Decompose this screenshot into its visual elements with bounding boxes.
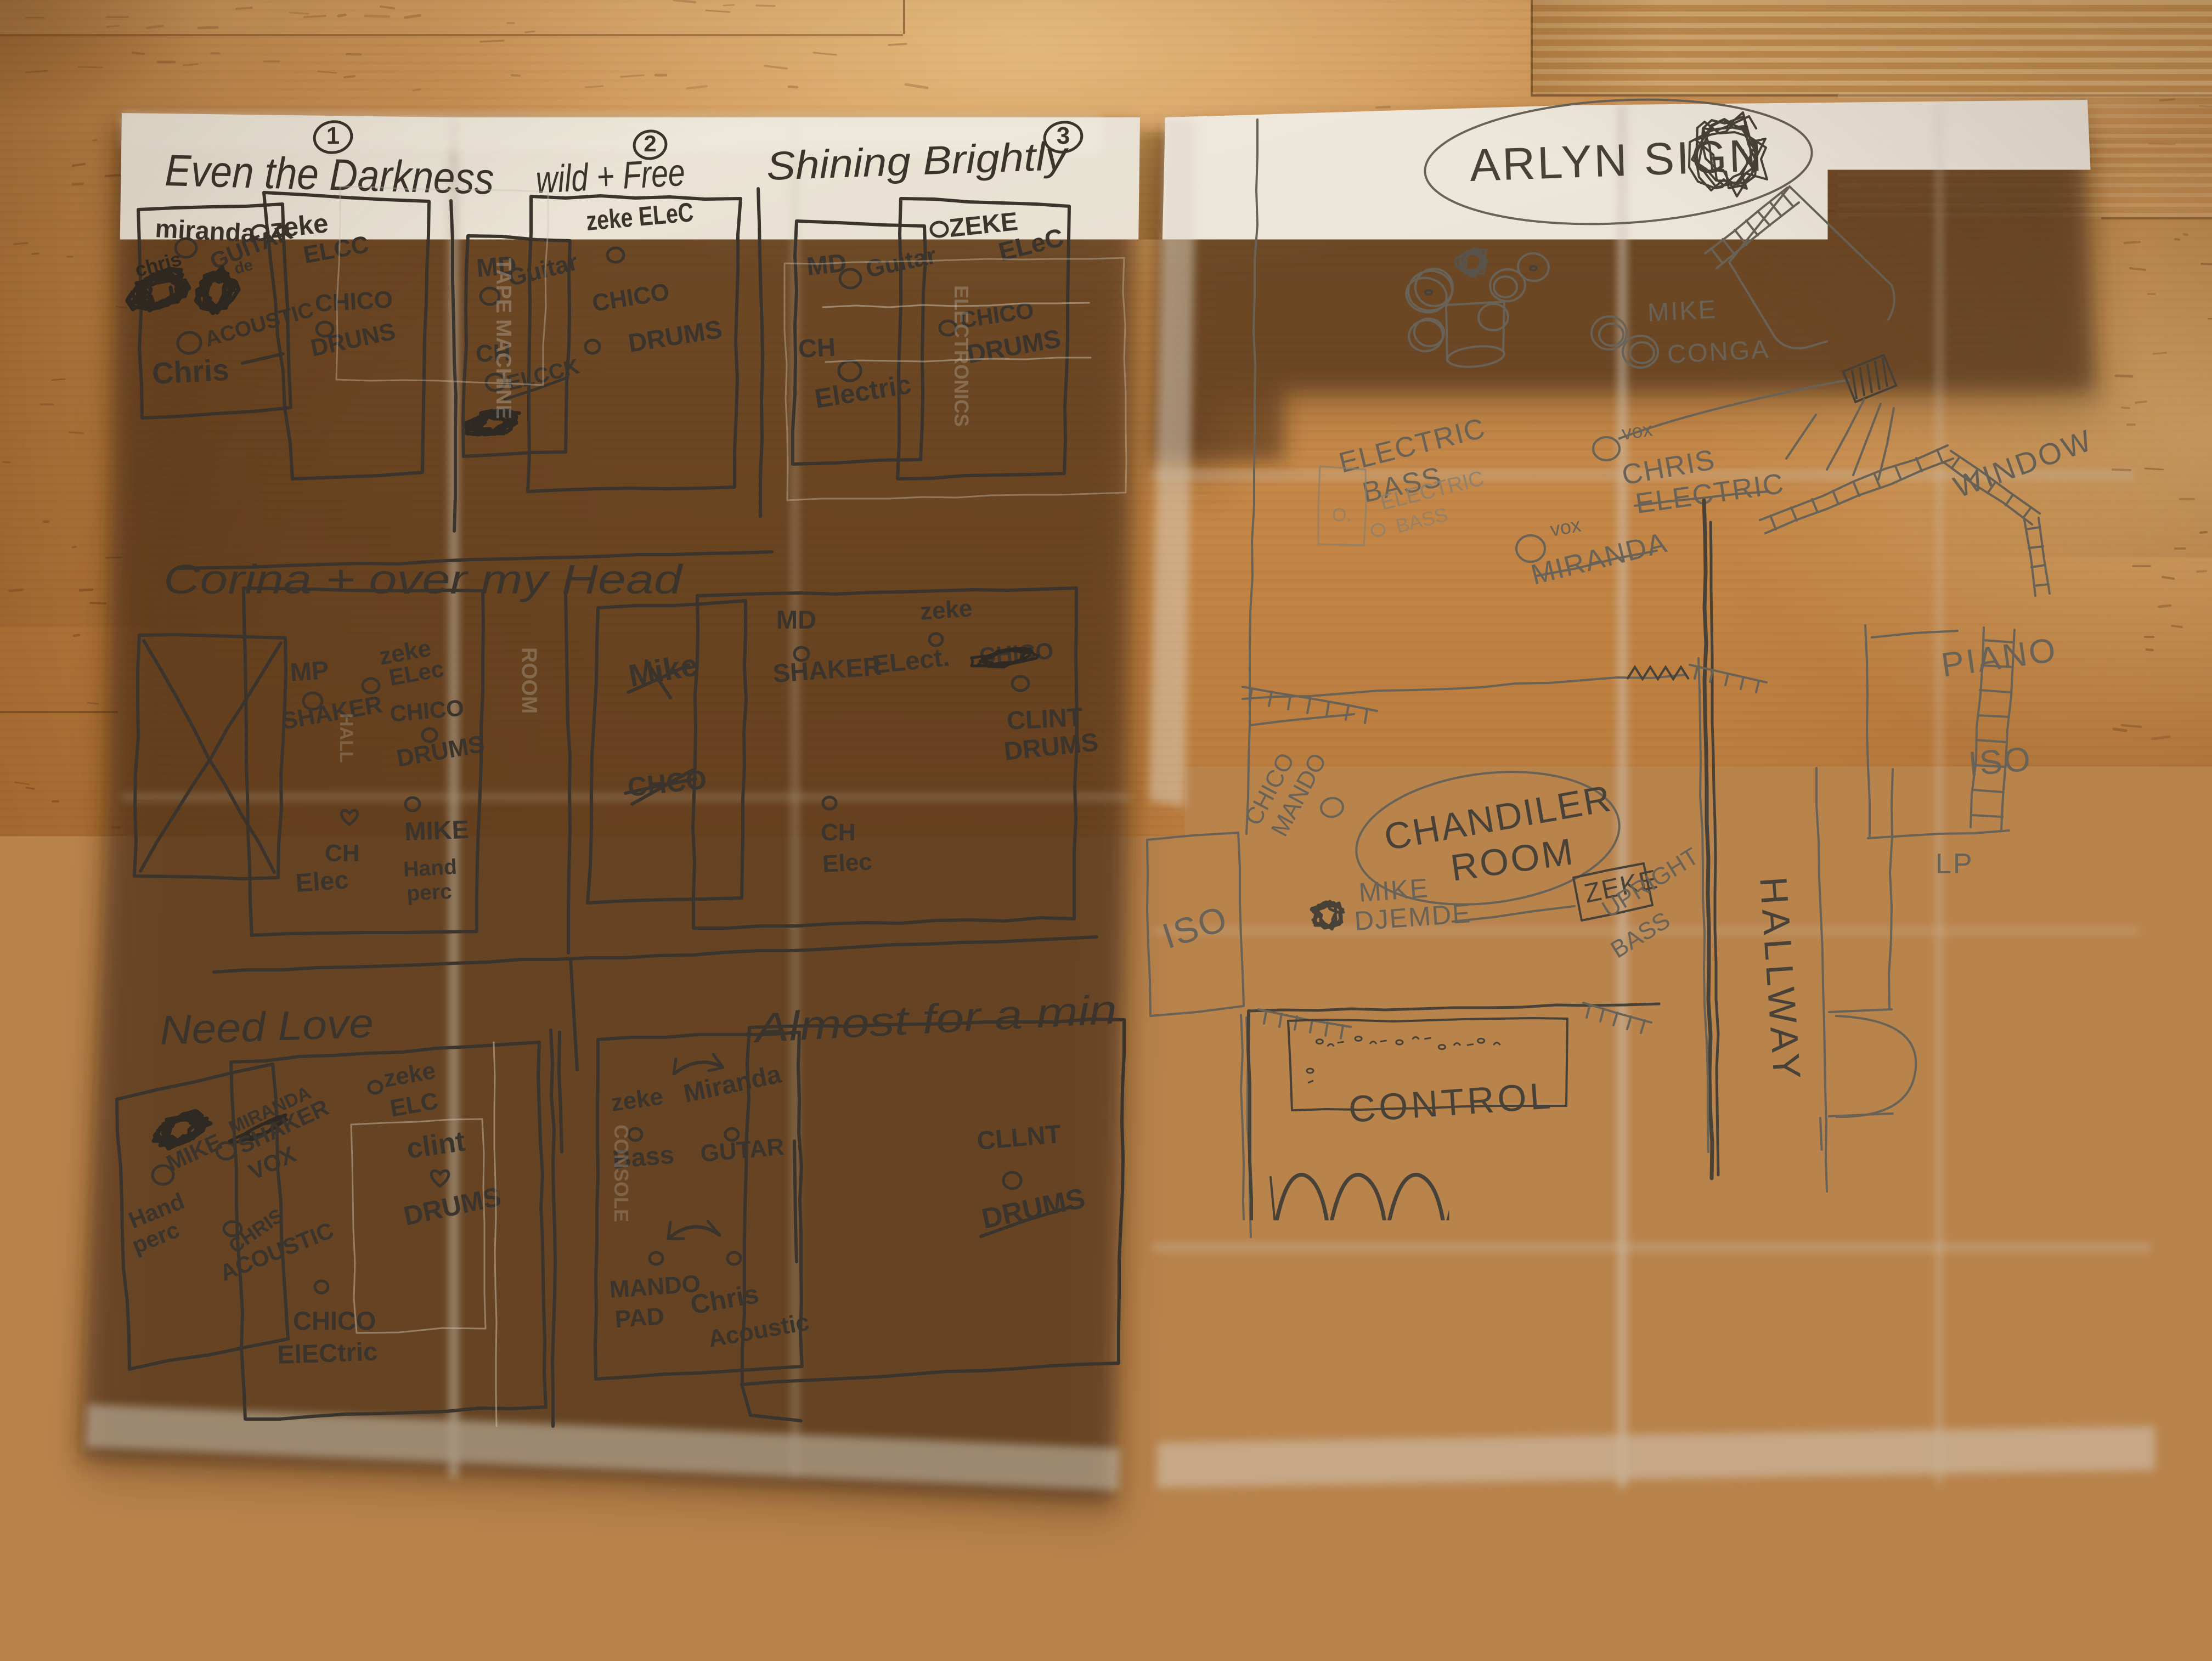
svg-text:Elec: Elec bbox=[295, 865, 349, 897]
svg-text:CORINA: CORINA bbox=[1938, 882, 2059, 918]
svg-text:CH: CH bbox=[821, 819, 856, 846]
svg-text:Need Love: Need Love bbox=[159, 999, 375, 1053]
svg-text:DD3+DD7: DD3+DD7 bbox=[1946, 1163, 2090, 1200]
svg-text:CH: CH bbox=[798, 332, 837, 363]
svg-text:1: 1 bbox=[326, 122, 340, 149]
svg-text:CHICO: CHICO bbox=[293, 1306, 376, 1335]
svg-text:ISO: ISO bbox=[1967, 740, 2033, 783]
svg-text:HALL: HALL bbox=[336, 713, 357, 763]
svg-text:O.: O. bbox=[1332, 505, 1352, 526]
svg-text:CONSOLE: CONSOLE bbox=[610, 1125, 633, 1222]
svg-text:Hand: Hand bbox=[403, 855, 458, 882]
svg-text:ElECtric: ElECtric bbox=[276, 1337, 378, 1369]
svg-text:MP: MP bbox=[289, 655, 330, 687]
svg-text:Chris: Chris bbox=[151, 353, 230, 391]
svg-text:CHICO: CHICO bbox=[314, 286, 393, 317]
svg-text:MIKE: MIKE bbox=[404, 815, 469, 846]
svg-text:BLASUR: BLASUR bbox=[1933, 916, 2058, 952]
svg-text:TAPE MACHINE: TAPE MACHINE bbox=[492, 258, 515, 419]
svg-text:Elec: Elec bbox=[822, 848, 873, 878]
svg-text:MIKE: MIKE bbox=[1647, 294, 1718, 327]
svg-text:2: 2 bbox=[644, 131, 656, 156]
svg-text:PAD: PAD bbox=[614, 1303, 665, 1333]
svg-text:CONGA: CONGA bbox=[1667, 334, 1771, 369]
svg-text:GIBSON: GIBSON bbox=[1938, 1095, 2059, 1131]
svg-text:ROOM: ROOM bbox=[517, 647, 541, 714]
svg-text:Corina + over my Head: Corina + over my Head bbox=[163, 556, 684, 602]
svg-text:perc: perc bbox=[406, 880, 453, 906]
svg-text:3: 3 bbox=[1057, 122, 1070, 149]
svg-text:CH: CH bbox=[325, 840, 360, 867]
svg-text:wild + Free: wild + Free bbox=[535, 151, 686, 201]
svg-text:MD: MD bbox=[776, 605, 816, 634]
svg-text:LP: LP bbox=[1936, 848, 1974, 880]
svg-text:zeke: zeke bbox=[919, 595, 973, 625]
